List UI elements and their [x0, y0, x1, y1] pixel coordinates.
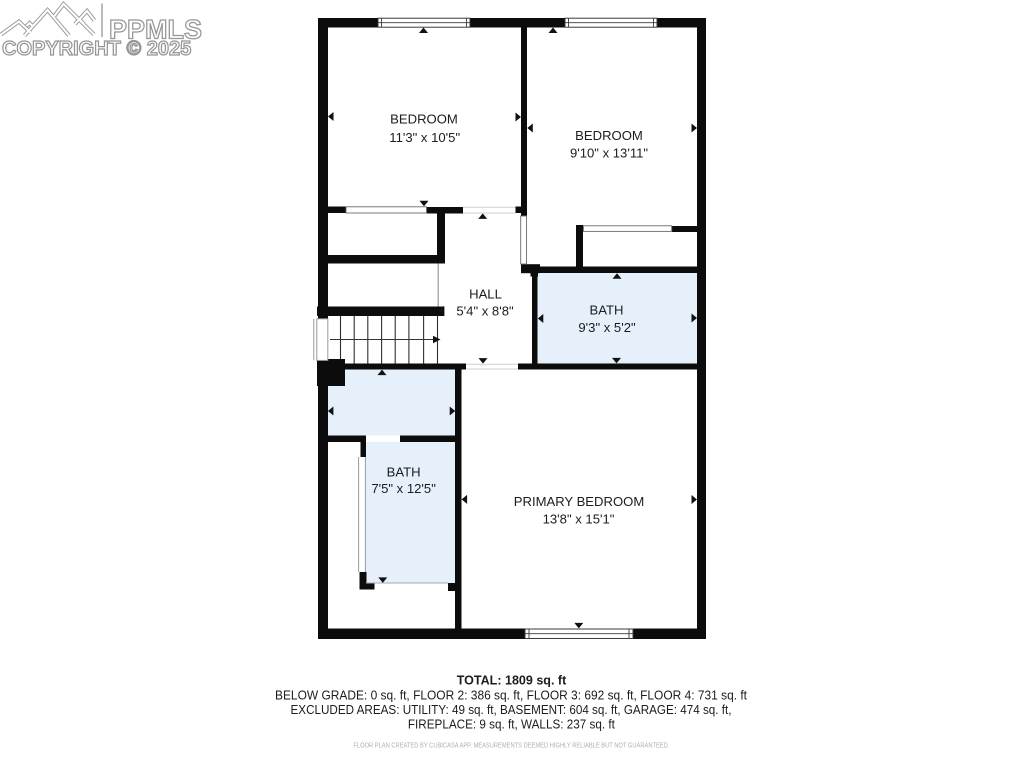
- svg-text:BATH: BATH: [387, 465, 421, 480]
- svg-text:COPYRIGHT © 2025: COPYRIGHT © 2025: [2, 38, 191, 60]
- svg-text:9'3" x 5'2": 9'3" x 5'2": [578, 320, 636, 335]
- svg-text:BATH: BATH: [590, 303, 624, 318]
- svg-text:9'10" x 13'11": 9'10" x 13'11": [570, 146, 648, 161]
- svg-text:11'3" x 10'5": 11'3" x 10'5": [389, 130, 460, 145]
- svg-text:BELOW GRADE: 0 sq. ft, FLOOR 2: BELOW GRADE: 0 sq. ft, FLOOR 2: 386 sq. …: [275, 688, 747, 703]
- svg-text:FIREPLACE: 9 sq. ft, WALLS: 23: FIREPLACE: 9 sq. ft, WALLS: 237 sq. ft: [408, 717, 615, 732]
- svg-text:HALL: HALL: [469, 287, 502, 302]
- svg-text:PRIMARY BEDROOM: PRIMARY BEDROOM: [514, 494, 644, 509]
- svg-text:EXCLUDED AREAS: UTILITY: 49 sq: EXCLUDED AREAS: UTILITY: 49 sq. ft, BASE…: [291, 702, 732, 717]
- svg-text:BEDROOM: BEDROOM: [390, 112, 458, 127]
- svg-text:TOTAL: 1809 sq. ft: TOTAL: 1809 sq. ft: [457, 672, 567, 687]
- svg-text:FLOOR PLAN CREATED BY CUBICASA: FLOOR PLAN CREATED BY CUBICASA APP. MEAS…: [353, 742, 669, 749]
- svg-text:BEDROOM: BEDROOM: [575, 128, 643, 143]
- svg-text:7'5" x 12'5": 7'5" x 12'5": [371, 481, 436, 496]
- svg-text:5'4" x 8'8": 5'4" x 8'8": [456, 304, 514, 319]
- svg-text:13'8" x 15'1": 13'8" x 15'1": [543, 512, 615, 527]
